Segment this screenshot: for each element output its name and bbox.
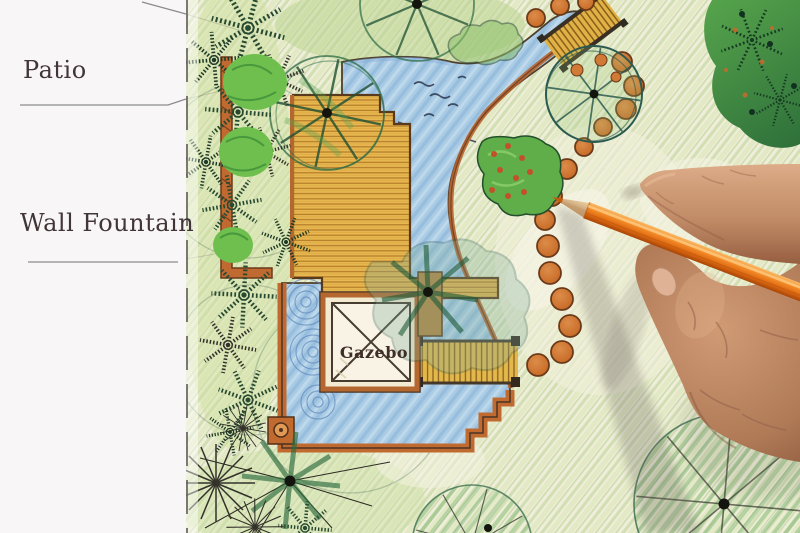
patio-label: Patio (23, 56, 87, 84)
wall-fountain-label: Wall Fountain (20, 209, 194, 237)
gazebo-label: Gazebo (336, 343, 412, 362)
garden-plan-photo: Patio Wall Fountain Gazebo (0, 0, 800, 533)
garden-plan-drawing (0, 0, 800, 533)
corner-drain (268, 417, 294, 444)
